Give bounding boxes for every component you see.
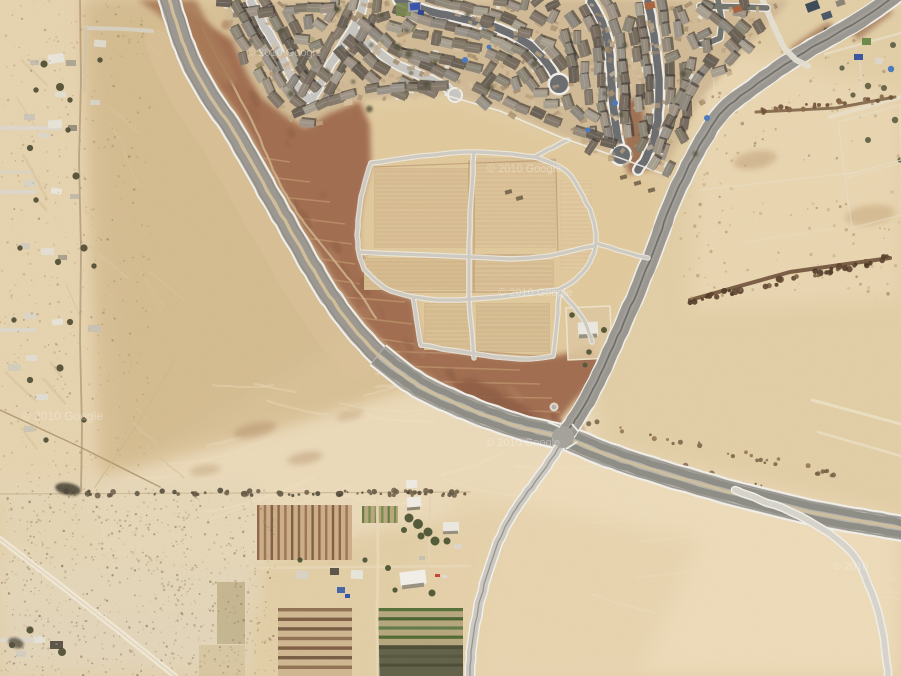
svg-text:© 2010 Google: © 2010 Google <box>247 47 321 59</box>
svg-text:© 2010: © 2010 <box>833 561 869 573</box>
svg-text:© 2010 Google: © 2010 Google <box>486 437 560 449</box>
svg-text:© 2010 Google: © 2010 Google <box>498 287 572 299</box>
svg-text:© 2010 Google: © 2010 Google <box>22 409 103 423</box>
svg-text:© 2010 Google: © 2010 Google <box>487 163 561 175</box>
